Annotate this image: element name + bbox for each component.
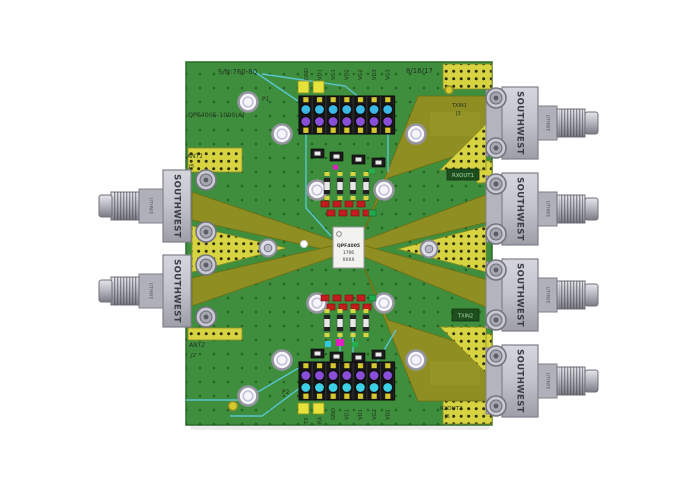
svg-text:RX: RX: [317, 416, 323, 424]
port-sticker-txin2: TXIN2: [452, 309, 479, 321]
chip-marking-1: QPF4005: [337, 243, 360, 249]
svg-text:VG2: VG2: [372, 409, 378, 420]
svg-text:GND: GND: [304, 68, 310, 80]
svg-text:VD2: VD2: [385, 409, 391, 420]
test-dot: [301, 241, 308, 248]
pink-component: [336, 339, 344, 346]
chip-marking-3: XXXX: [342, 257, 354, 263]
sma-ant1: [99, 170, 216, 242]
svg-text:VG3: VG3: [385, 69, 391, 80]
sma-rxout2: [486, 345, 598, 417]
sma-txin2: [486, 259, 598, 331]
svg-text:RXOUT1: RXOUT1: [452, 173, 474, 179]
sma-rxout1: [486, 173, 598, 245]
sma-ant2: [99, 255, 216, 327]
svg-text:VD1: VD1: [358, 409, 364, 420]
refdes-j6: J6: [444, 414, 450, 420]
port-label-ant1: ANT1: [186, 153, 203, 160]
svg-text:TXIN2: TXIN2: [457, 314, 473, 320]
svg-text:VG2: VG2: [358, 69, 364, 80]
green-component: [352, 342, 358, 347]
port-sticker-rxout1: RXOUT1: [447, 169, 479, 180]
refdes-j2: J2: [190, 353, 197, 359]
port-label-rxout2: RXOUT2: [440, 406, 462, 412]
assembly-number: QPF4005-1000(A): [188, 111, 245, 119]
svg-text:GND: GND: [331, 408, 337, 420]
chip-marking-2: 1706: [343, 250, 354, 256]
pcb-board: GND VD1 VG1 VD2 VG2 VD3 VG3 P1 TX RX GND…: [186, 62, 492, 430]
p2-ref: P2: [282, 389, 290, 396]
refdes-j3: J3: [455, 111, 461, 117]
serial-number: S/N:760-80: [218, 68, 257, 76]
svg-text:VD3: VD3: [372, 69, 378, 80]
svg-text:TX: TX: [304, 417, 310, 425]
pcb-photo: SOUTHWEST UTHWE SOUTHWEST UTHWE: [0, 0, 700, 500]
svg-text:VD1: VD1: [317, 69, 323, 80]
sma-txin1: [486, 87, 598, 159]
port-label-txin1: TXIN1: [451, 103, 467, 109]
green-component: [369, 169, 375, 173]
svg-text:VG1: VG1: [331, 69, 337, 80]
pink-component: [333, 165, 338, 170]
port-label-ant2: ANT2: [188, 342, 205, 349]
svg-text:VD2: VD2: [345, 69, 351, 80]
fiducial-icon: [445, 86, 453, 94]
build-date: 8/16/17: [406, 67, 433, 75]
cyan-component: [325, 341, 331, 347]
refdes-j5: J5: [188, 164, 195, 170]
pcb-render: SOUTHWEST UTHWE SOUTHWEST UTHWE: [0, 0, 700, 500]
svg-text:VG1: VG1: [345, 409, 351, 420]
fiducial-icon: [229, 402, 238, 411]
qpf4005-chip: QPF4005 1706 XXXX: [333, 227, 364, 268]
green-component: [369, 210, 376, 216]
p1-ref: P1: [262, 96, 270, 103]
